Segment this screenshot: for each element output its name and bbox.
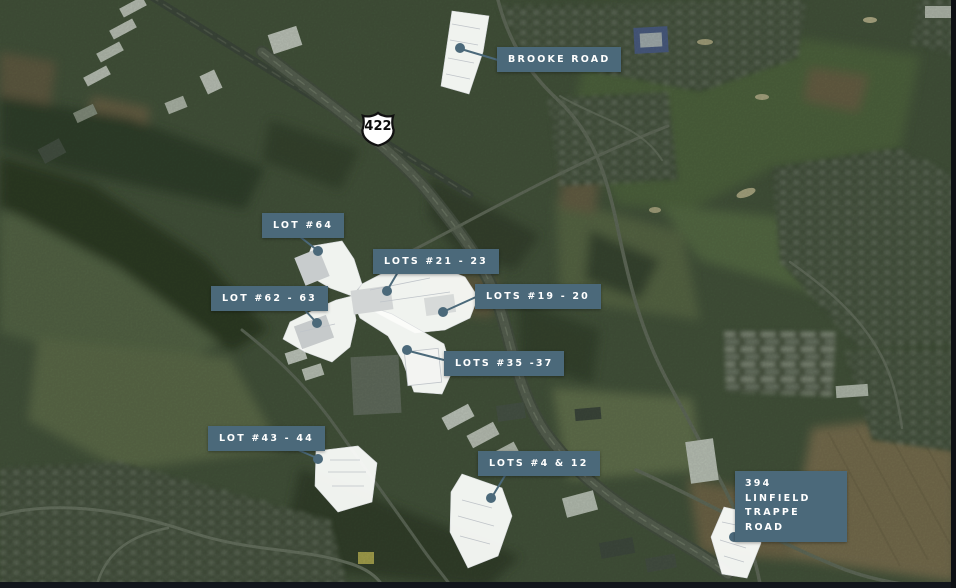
label-lot-62-63[interactable]: LOT #62 - 63 [211,286,328,311]
label-line-2: TRAPPE ROAD [745,507,800,533]
aerial-map[interactable]: 422 BROOKE ROAD LOT #64 LOTS #21 - 23 LO… [0,0,956,588]
label-lot-64[interactable]: LOT #64 [262,213,344,238]
label-lots-19-20[interactable]: LOTS #19 - 20 [475,284,601,309]
label-line-1: 394 LINFIELD [745,478,811,504]
label-lots-4-12[interactable]: LOTS #4 & 12 [478,451,600,476]
label-394-linfield-trappe-road[interactable]: 394 LINFIELD TRAPPE ROAD [735,471,847,542]
route-422-shield: 422 [359,111,397,147]
label-lots-21-23[interactable]: LOTS #21 - 23 [373,249,499,274]
label-brooke-road[interactable]: BROOKE ROAD [497,47,621,72]
label-lots-35-37[interactable]: LOTS #35 -37 [444,351,564,376]
route-number: 422 [359,120,397,133]
label-lot-43-44[interactable]: LOT #43 - 44 [208,426,325,451]
